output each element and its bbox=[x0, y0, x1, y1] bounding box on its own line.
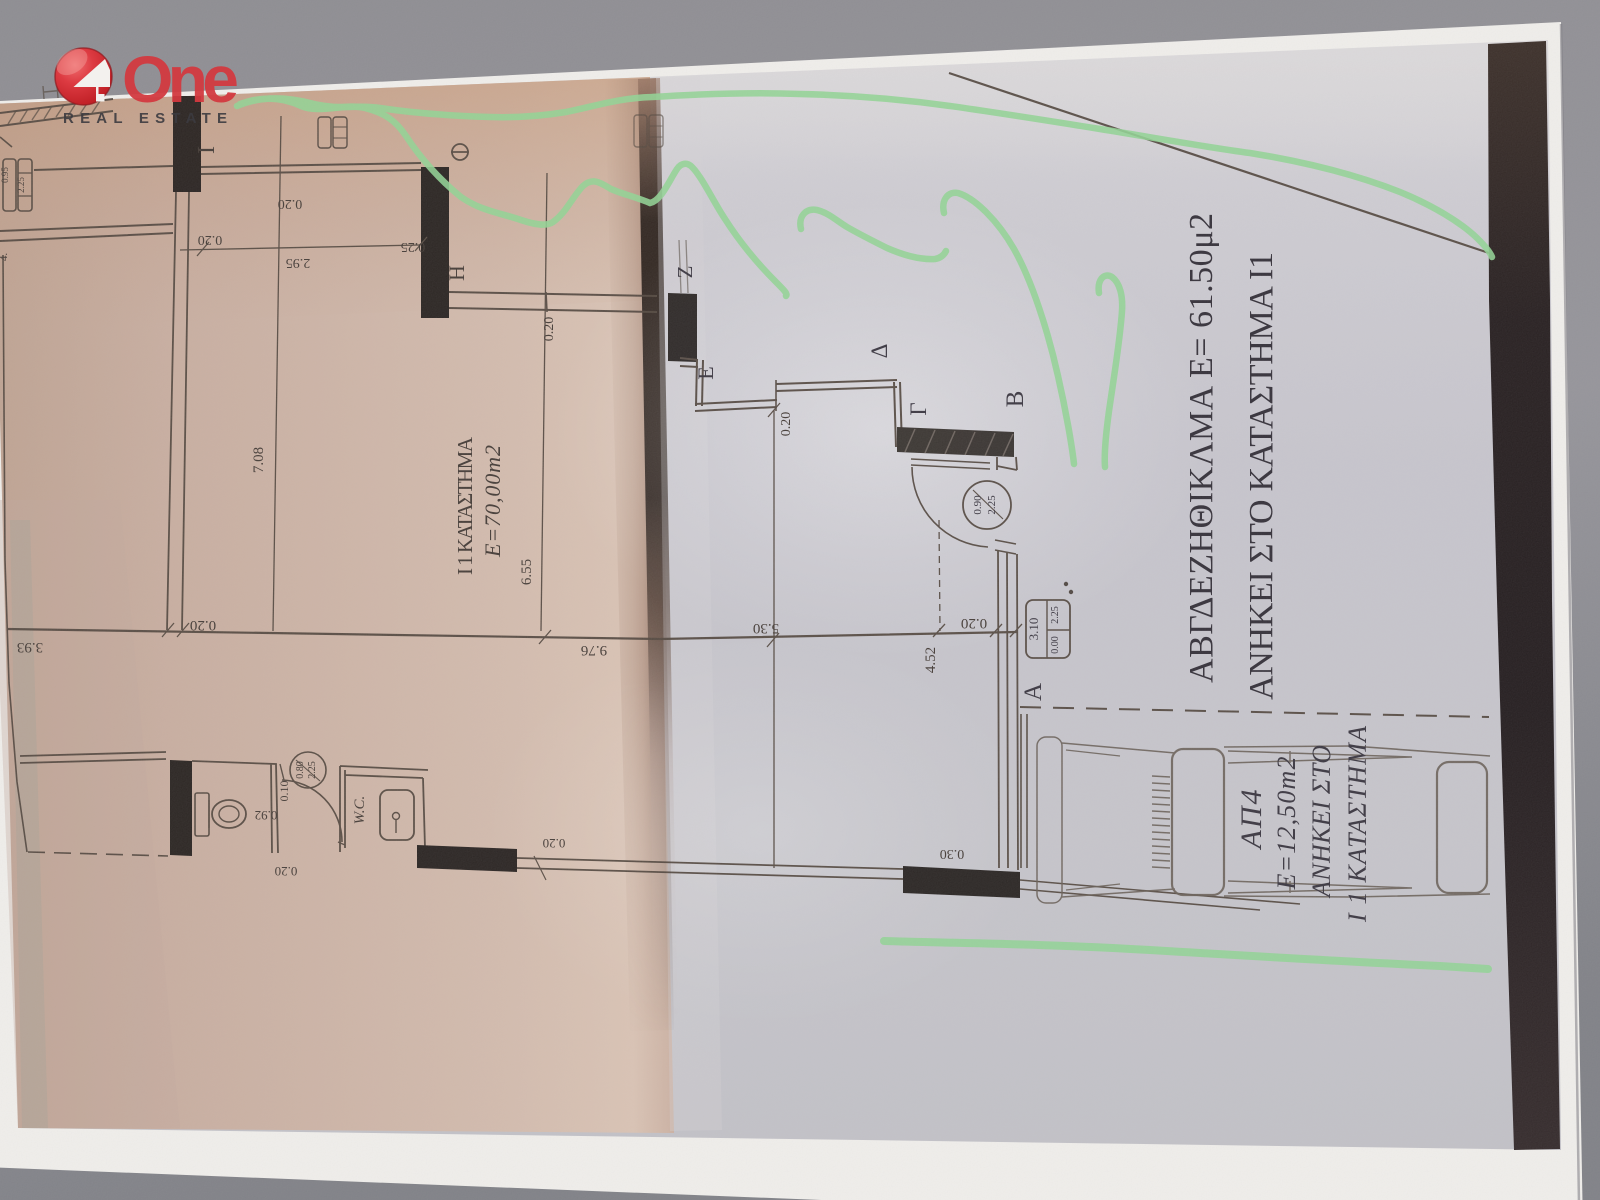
svg-text:One: One bbox=[122, 42, 239, 116]
svg-text:REAL ESTATE: REAL ESTATE bbox=[63, 110, 233, 127]
